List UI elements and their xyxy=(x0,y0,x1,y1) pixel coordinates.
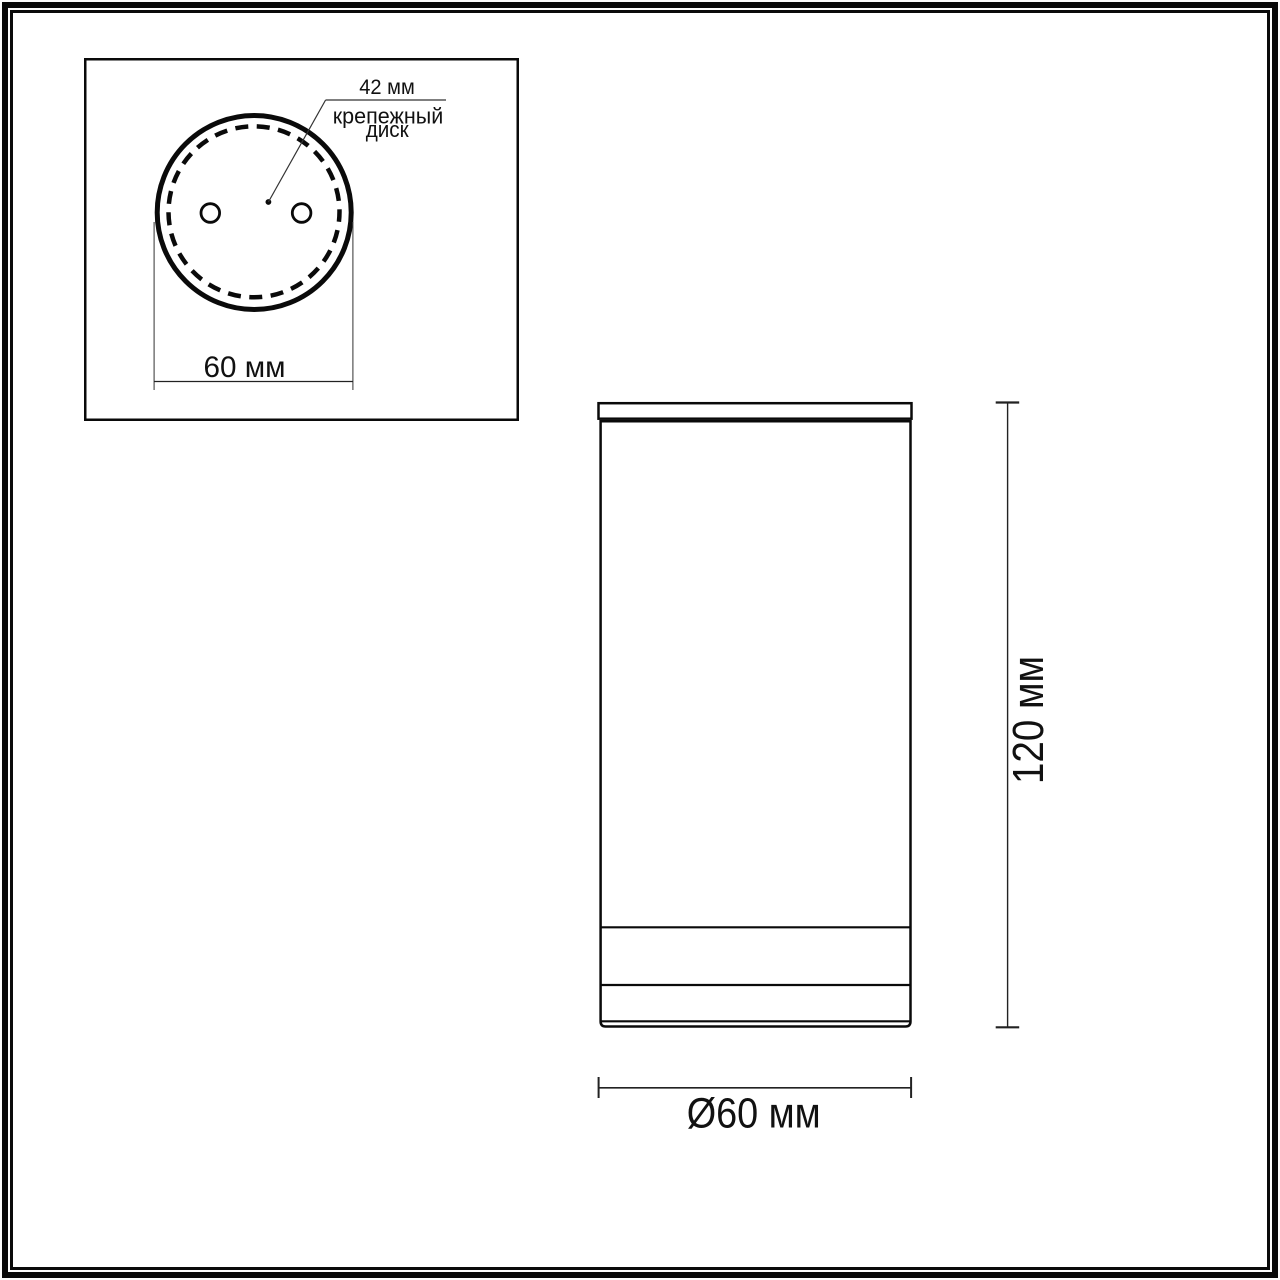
svg-text:Ø60 мм: Ø60 мм xyxy=(687,1090,821,1138)
svg-text:диск: диск xyxy=(366,117,409,142)
svg-text:42 мм: 42 мм xyxy=(359,75,415,99)
svg-text:120 мм: 120 мм xyxy=(1005,656,1053,784)
svg-text:60 мм: 60 мм xyxy=(204,351,286,384)
